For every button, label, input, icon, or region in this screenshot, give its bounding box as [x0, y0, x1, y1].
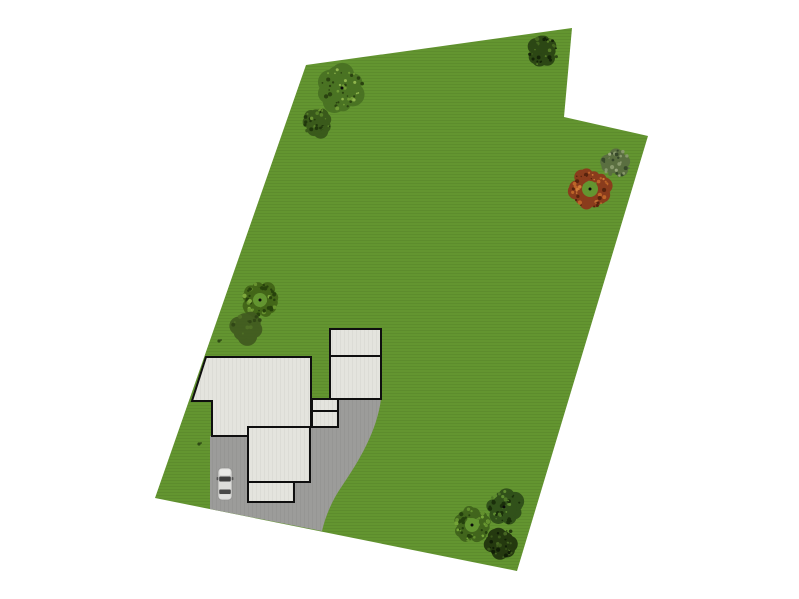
parked-car: [217, 468, 234, 500]
tree-trunk-dot: [503, 506, 506, 509]
breezeway-lower: [312, 411, 338, 427]
tree-trunk-dot: [471, 524, 474, 527]
car-hood: [220, 469, 231, 475]
site-plan-canvas: [0, 0, 799, 599]
tree-trunk-dot: [589, 188, 592, 191]
site-plan-drawing: [0, 0, 799, 599]
rear-wing: [248, 427, 310, 482]
car-roof: [219, 482, 231, 489]
car-mirror-right: [232, 477, 234, 480]
garage-upper: [330, 329, 381, 356]
garage-lower: [330, 356, 381, 399]
rear-porch: [248, 482, 294, 502]
bush-west: [242, 282, 278, 317]
tree-trunk-dot: [259, 299, 262, 302]
car-rear-window: [219, 490, 231, 495]
tree-trunk-dot: [341, 87, 344, 90]
car-trunk: [220, 495, 231, 499]
breezeway-upper: [312, 399, 338, 411]
car-windshield: [219, 477, 231, 482]
car-mirror-left: [217, 477, 219, 480]
tree-north: [528, 36, 558, 67]
